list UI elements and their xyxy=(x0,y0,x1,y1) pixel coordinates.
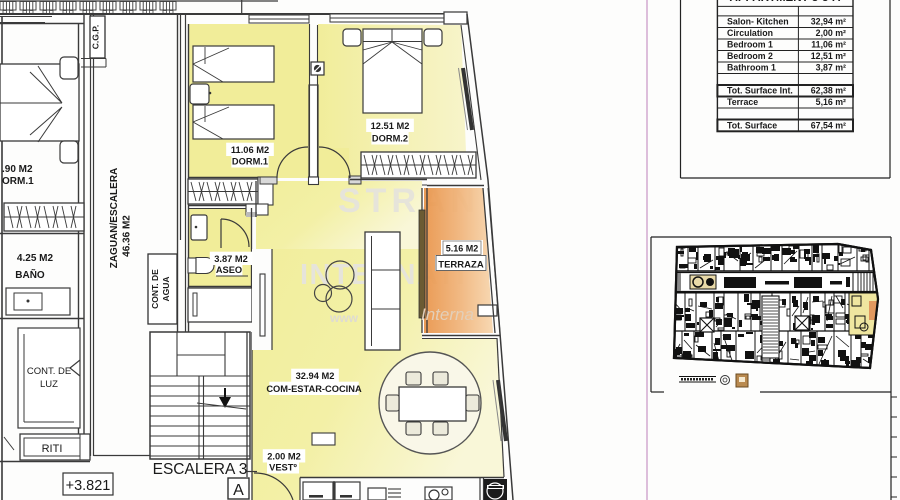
svg-text:APPARTMENT 8-3-A: APPARTMENT 8-3-A xyxy=(730,0,841,4)
svg-text:4.25 M2: 4.25 M2 xyxy=(17,253,54,264)
svg-text:11,06 m²: 11,06 m² xyxy=(811,40,846,50)
svg-text:ZAGUAN/ESCALERA: ZAGUAN/ESCALERA xyxy=(109,168,120,269)
svg-text:ESCALERA 3: ESCALERA 3 xyxy=(153,461,248,478)
svg-text:TERRAZA: TERRAZA xyxy=(438,260,484,271)
svg-text:BAÑO: BAÑO xyxy=(15,268,45,281)
svg-text:COM-ESTAR-COCINA: COM-ESTAR-COCINA xyxy=(266,384,362,394)
svg-text:Interna: Interna xyxy=(421,305,474,324)
svg-text:ASEO: ASEO xyxy=(216,265,242,275)
svg-text:Salon- Kitchen: Salon- Kitchen xyxy=(727,17,789,27)
svg-text:Tot. Surface Int.: Tot. Surface Int. xyxy=(727,86,793,96)
svg-text:www: www xyxy=(329,311,359,325)
svg-text:12.51 M2: 12.51 M2 xyxy=(371,121,410,131)
svg-text:Tot. Surface: Tot. Surface xyxy=(727,121,777,131)
svg-text:AGUA: AGUA xyxy=(161,276,171,301)
svg-text:11.06 M2: 11.06 M2 xyxy=(231,145,269,155)
svg-text:3,87 m²: 3,87 m² xyxy=(816,63,846,73)
svg-text:DORM.2: DORM.2 xyxy=(372,134,408,144)
svg-text:+3.821: +3.821 xyxy=(66,478,111,494)
svg-text:Terrace: Terrace xyxy=(727,97,758,107)
svg-text:2.00 M2: 2.00 M2 xyxy=(267,452,301,462)
svg-text:5.16 M2: 5.16 M2 xyxy=(446,244,479,254)
svg-text:32,94 m²: 32,94 m² xyxy=(811,17,846,27)
svg-text:Bedroom 2: Bedroom 2 xyxy=(727,51,773,61)
svg-text:2,00 m²: 2,00 m² xyxy=(816,28,846,38)
svg-text:DORM.1: DORM.1 xyxy=(232,157,268,167)
svg-text:32.94 M2: 32.94 M2 xyxy=(296,371,335,381)
svg-text:46.36 M2: 46.36 M2 xyxy=(122,215,133,257)
svg-text:5,16 m²: 5,16 m² xyxy=(816,97,846,107)
svg-text:Bathroom 1: Bathroom 1 xyxy=(727,63,776,73)
svg-text:62,38 m²: 62,38 m² xyxy=(811,86,846,96)
svg-text:.90 M2: .90 M2 xyxy=(2,164,33,175)
svg-text:LUZ: LUZ xyxy=(40,379,58,390)
svg-text:Circulation: Circulation xyxy=(727,28,773,38)
svg-text:A: A xyxy=(233,482,244,499)
svg-text:67,54 m²: 67,54 m² xyxy=(811,121,846,131)
svg-text:C.G.P.: C.G.P. xyxy=(91,25,101,49)
svg-text:CONT. DE: CONT. DE xyxy=(27,366,71,377)
svg-text:3.87 M2: 3.87 M2 xyxy=(214,254,248,264)
svg-text:Bedroom 1: Bedroom 1 xyxy=(727,40,773,50)
svg-text:VESTº: VESTº xyxy=(269,463,297,473)
svg-text:12,51 m²: 12,51 m² xyxy=(811,51,846,61)
svg-text:RITI: RITI xyxy=(42,443,63,455)
svg-text:CONT. DE: CONT. DE xyxy=(150,269,160,309)
svg-text:ORM.1: ORM.1 xyxy=(2,176,34,187)
